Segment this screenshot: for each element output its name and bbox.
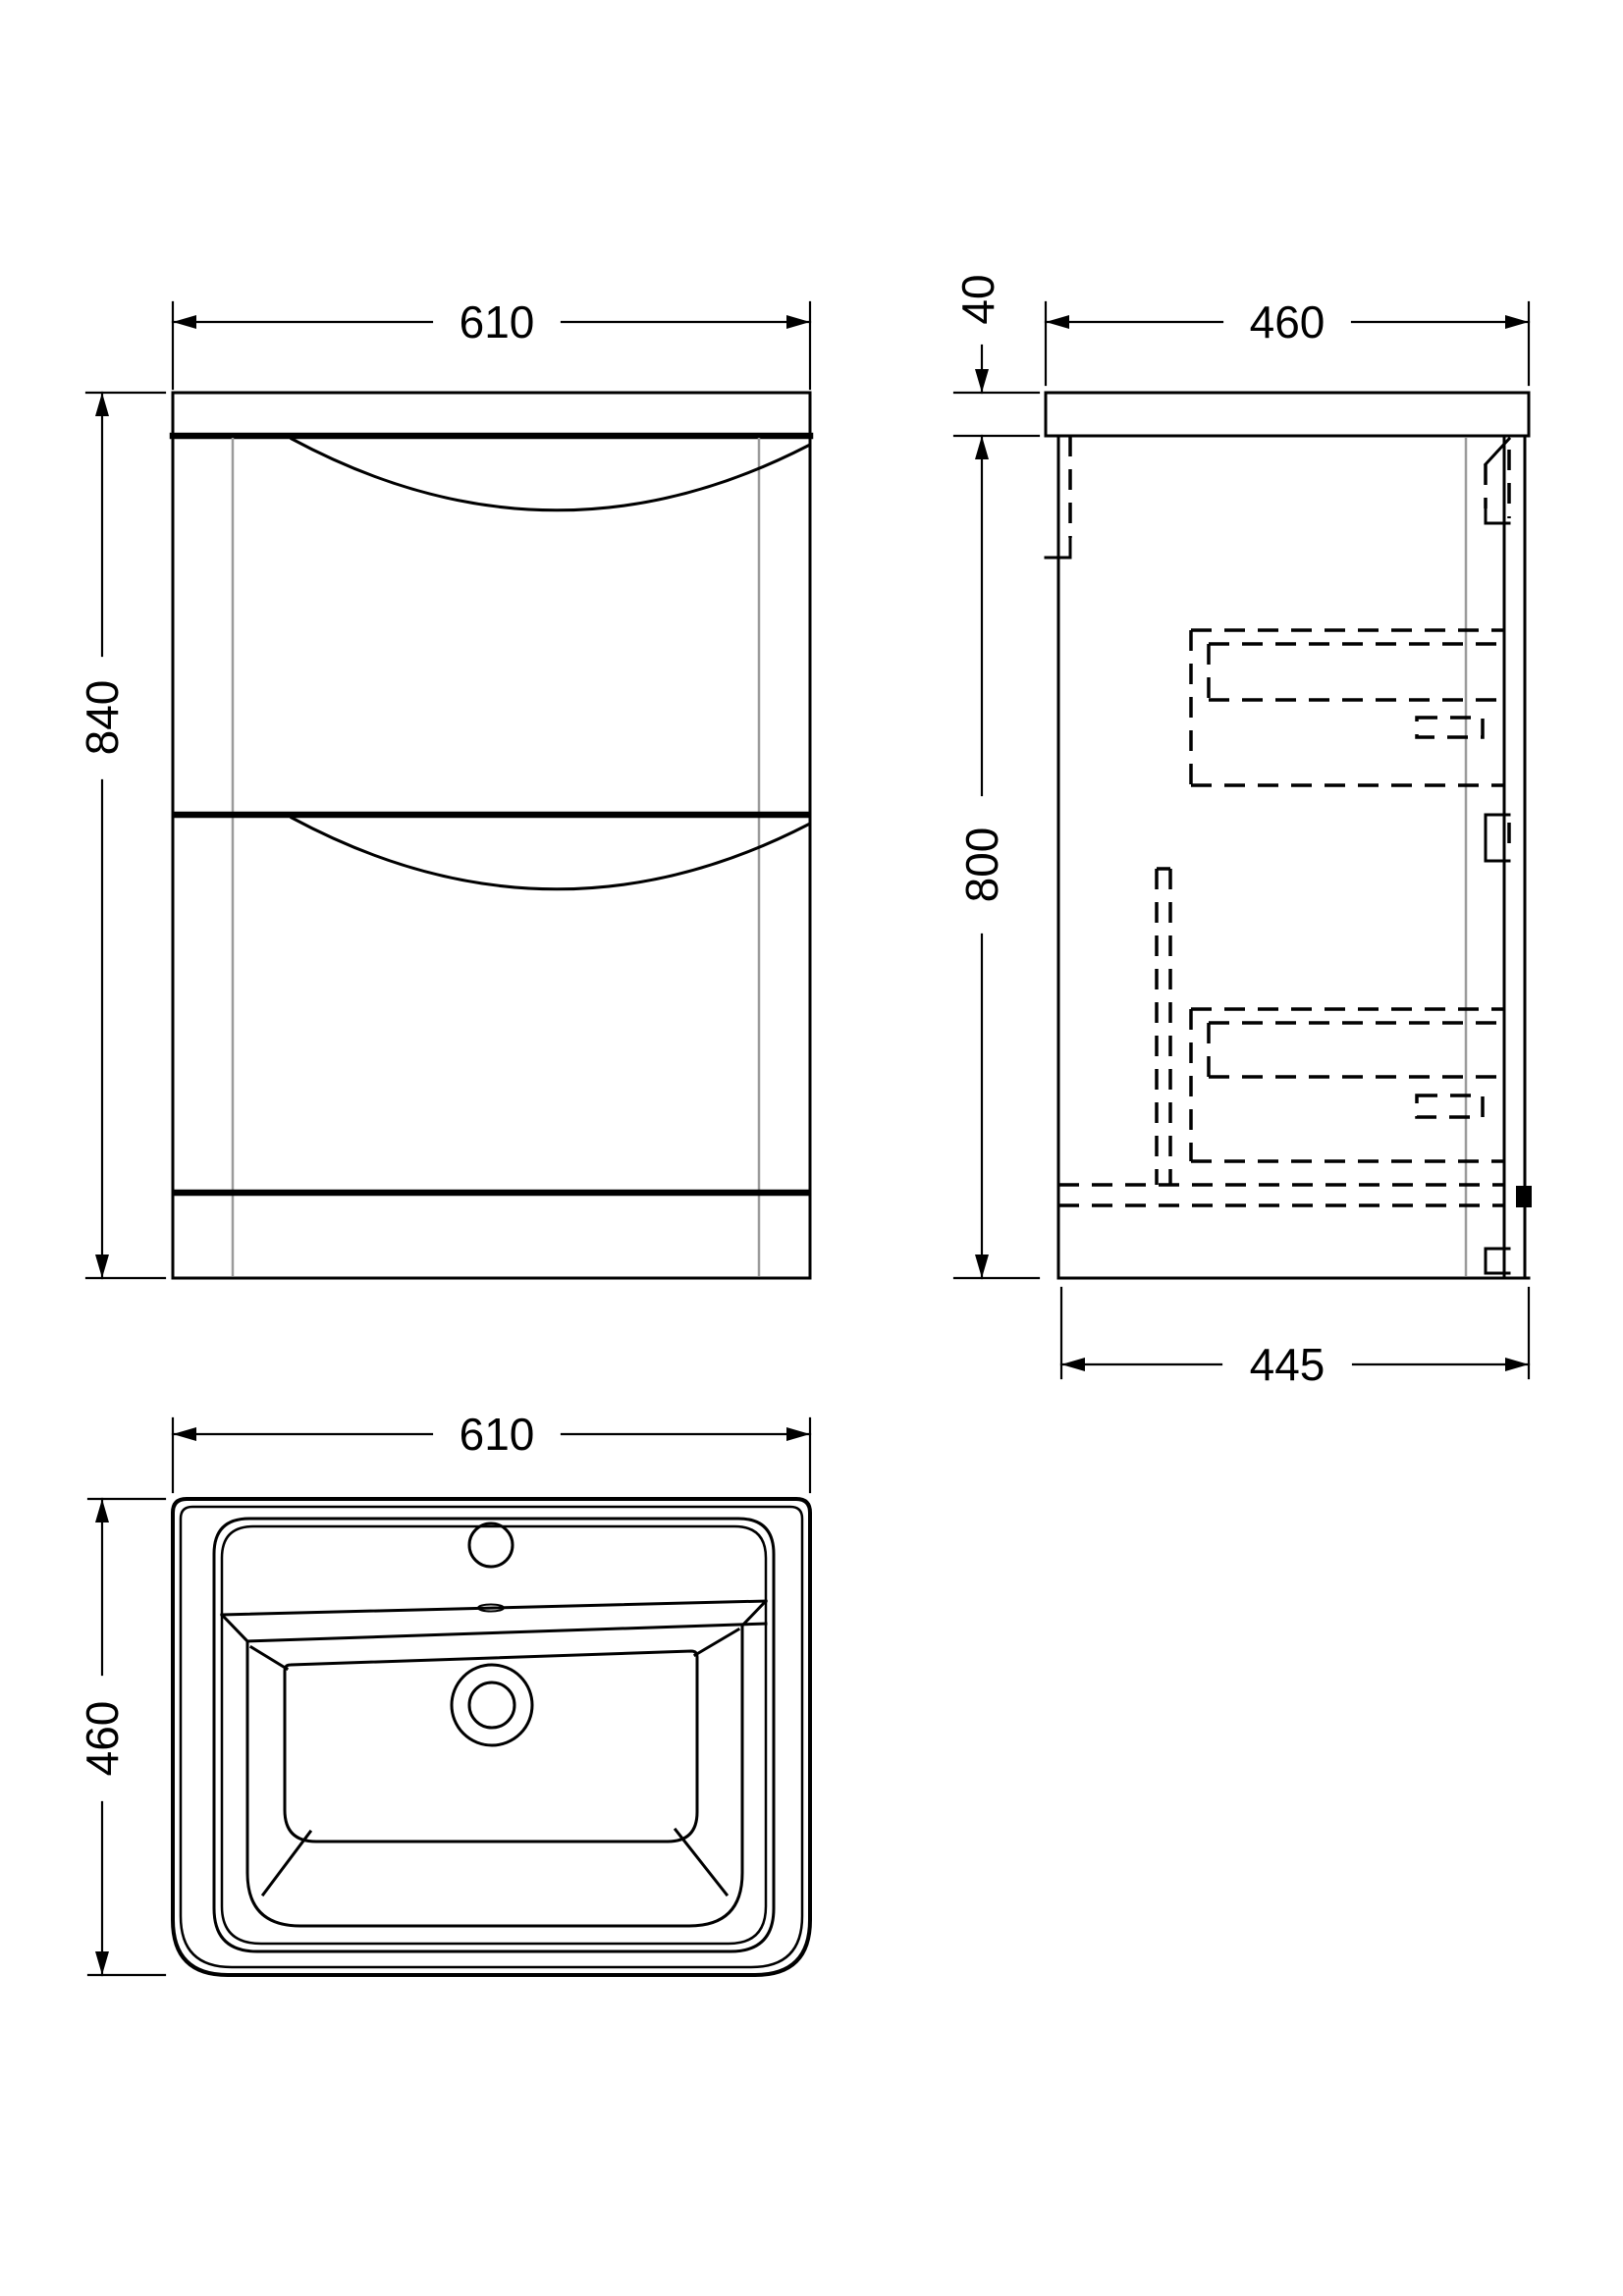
drawer-2-slide: [1417, 1095, 1483, 1117]
worktop-thickness-label: 40: [952, 274, 1003, 324]
side-height-dimension: 800: [954, 436, 1039, 1278]
bowl-back-edge-line: [247, 1624, 766, 1641]
front-width-label: 610: [460, 296, 535, 347]
side-top-width-label: 460: [1250, 296, 1325, 347]
waste-drain-inner: [469, 1682, 514, 1728]
side-base-depth-dimension: 445: [1061, 1288, 1529, 1390]
front-height-label: 840: [77, 680, 128, 756]
front-view: 610 840: [77, 296, 810, 1278]
drawer-2-handle-curve: [292, 818, 808, 889]
side-cabinet-outline: [1046, 393, 1529, 1278]
front-cabinet-outline: [173, 393, 810, 1278]
drawing-sheet: 610 840: [0, 0, 1623, 2296]
side-height-label: 800: [956, 828, 1007, 903]
waste-drain-outer: [452, 1665, 532, 1745]
front-height-dimension: 840: [77, 393, 165, 1278]
front-width-dimension: 610: [173, 296, 810, 389]
worktop-section: [1046, 393, 1529, 436]
basin-outline: [173, 1499, 810, 1975]
side-hidden-details: [1046, 436, 1532, 1273]
plan-depth-label: 460: [77, 1701, 128, 1777]
deck-edge-line: [222, 1601, 766, 1615]
tap-hole: [469, 1523, 513, 1567]
plan-width-dimension: 610: [173, 1409, 810, 1492]
drawer-1-handle-curve: [292, 439, 808, 510]
plan-view: 610 460: [77, 1409, 810, 1975]
technical-drawing: 610 840: [0, 0, 1623, 2296]
drawer-1-slide: [1417, 718, 1483, 737]
plan-width-label: 610: [460, 1409, 535, 1460]
side-base-depth-label: 445: [1250, 1339, 1325, 1390]
side-worktop-thickness-dimension: 40: [952, 274, 1039, 459]
side-top-width-dimension: 460: [1046, 296, 1529, 385]
bowl-wall: [247, 1626, 742, 1926]
plan-depth-dimension: 460: [77, 1499, 165, 1975]
bottom-rail-section: [1516, 1186, 1532, 1207]
side-view: 460 40 800 445: [952, 274, 1532, 1390]
